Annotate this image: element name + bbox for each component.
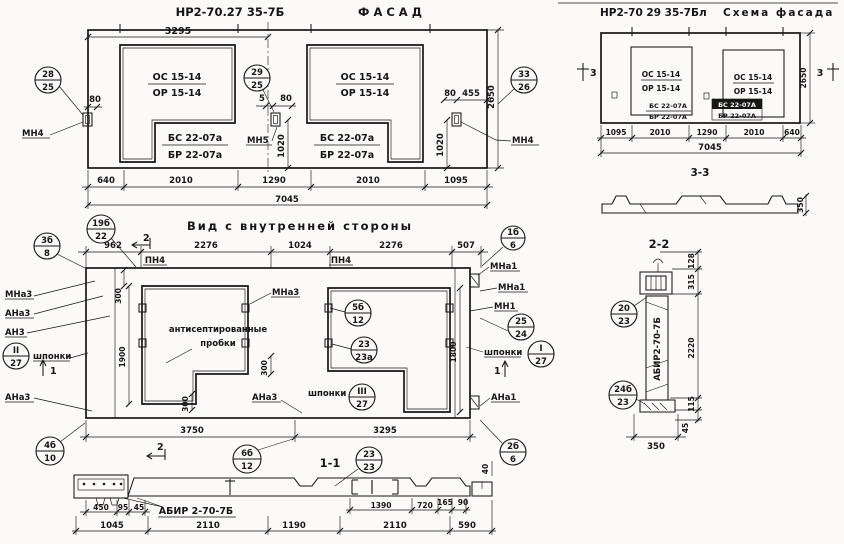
balloon-top: 29 <box>251 68 263 78</box>
balloon-top: 1б <box>507 227 519 238</box>
balloon-bot: 25 <box>251 81 263 91</box>
balloon-top: II <box>13 346 19 356</box>
interior-label-mna3: МНа3 <box>5 290 32 300</box>
balloon-bot: 6 <box>510 455 516 465</box>
facade-dim-7045: 7045 <box>275 195 299 205</box>
scheme-win1-mark-top: ОС 15-14 <box>642 70 680 79</box>
balloon-bot: 23 <box>617 398 629 408</box>
facade-anchor-mid-label: МН5 <box>247 136 269 146</box>
interior-label-shponki-mid: шпонки <box>308 389 346 399</box>
interior-dim-300c: 300 <box>181 396 190 412</box>
balloon-bot: 24 <box>515 330 527 340</box>
balloon-top: 24б <box>614 384 632 395</box>
facade-dim-2010b: 2010 <box>356 176 380 186</box>
facade-sill1-mark-bot: БР 22-07а <box>168 150 222 161</box>
balloon-bot: 10 <box>44 454 56 464</box>
balloon-top: 5б <box>352 302 364 313</box>
interior-dim-40: 40 <box>481 464 490 474</box>
section-1-1-title: 1-1 <box>320 456 341 470</box>
interior-note-line2: пробки <box>200 338 236 349</box>
interior-balloon-I-27: I 27 <box>528 341 554 367</box>
interior-label-an3: АН3 <box>5 328 25 338</box>
interior-label-ana3-a: АНа3 <box>5 309 30 319</box>
scheme-sill2-bot: БР 22-07А <box>718 112 756 120</box>
facade-dim-5: 5 <box>259 94 265 104</box>
balloon-top: 4б <box>44 440 56 451</box>
balloon-bot: 6 <box>510 241 516 251</box>
dim-115: 115 <box>687 396 696 412</box>
marker-label: 2 <box>157 442 164 453</box>
scheme-sill1-bot: БР 22-07А <box>649 113 687 121</box>
interior-dim-962: 962 <box>104 241 122 251</box>
balloon-top: 33 <box>518 70 530 80</box>
facade-title-code: НР2-70.27 35-7Б <box>176 5 285 19</box>
interior-dim-2276b: 2276 <box>379 241 403 251</box>
scheme-sill2-top: БС 22-07А <box>718 101 756 109</box>
interior-pn4-right: ПН4 <box>331 256 351 266</box>
interior-title: Вид с внутренней стороны <box>187 219 413 233</box>
dim-165: 165 <box>437 498 453 507</box>
scheme-win2-mark-top: ОС 15-14 <box>734 73 772 82</box>
facade-anchor-right-label: МН4 <box>512 136 534 146</box>
scheme-dim-640: 640 <box>784 128 800 137</box>
section22-label: АБИР2-70-7Б <box>653 317 663 381</box>
scheme-dim-2010b: 2010 <box>744 128 765 137</box>
dim-45: 45 <box>681 423 690 433</box>
interior-dim-1900: 1900 <box>118 347 127 368</box>
balloon-top: 28 <box>42 70 54 80</box>
scheme-sill1-top: БС 22-07А <box>649 102 687 110</box>
balloon-bot: 8 <box>44 249 50 259</box>
interior-label-mn1: МН1 <box>494 302 516 312</box>
scheme-win2-mark-bot: ОР 15-14 <box>734 87 772 96</box>
interior-dim-300b: 300 <box>260 360 269 376</box>
scheme-dim-2010a: 2010 <box>650 128 671 137</box>
balloon-bot: 23 <box>618 317 630 327</box>
facade-title-name: ФАСАД <box>358 5 426 19</box>
interior-dim-3295: 3295 <box>373 426 397 436</box>
facade-sill2-mark-top: БС 22-07а <box>320 133 374 144</box>
dim-2110b: 2110 <box>383 521 407 531</box>
balloon-top: 23 <box>363 450 375 460</box>
dim-720: 720 <box>417 501 433 510</box>
facade-sill1-mark-top: БС 22-07а <box>168 133 222 144</box>
dim-1190: 1190 <box>282 521 306 531</box>
interior-dim-1024: 1024 <box>288 241 312 251</box>
facade-dim-80-left: 80 <box>89 95 101 105</box>
interior-note-line1: антисептированные <box>169 325 268 335</box>
facade-dim-3295: 3295 <box>165 26 191 37</box>
balloon-bot: 23 <box>363 463 375 473</box>
marker-label: 1 <box>494 366 501 377</box>
interior-label-mna1-a: МНа1 <box>490 262 517 272</box>
balloon-top: 2б <box>507 441 519 452</box>
dim-95: 95 <box>118 503 128 512</box>
interior-dim-2276a: 2276 <box>194 241 218 251</box>
interior-dim-507: 507 <box>457 241 475 251</box>
scheme-title-name: Схема фасада <box>723 7 834 19</box>
paper-background <box>0 0 844 544</box>
facade-dim-2650: 2650 <box>487 85 497 109</box>
interior-label-shponki-right: шпонки <box>484 348 522 358</box>
balloon-top: 20 <box>618 304 630 314</box>
section22-title: 2-2 <box>649 237 670 251</box>
facade-dim-455: 455 <box>462 89 480 99</box>
facade-dim-80-mid: 80 <box>280 94 292 104</box>
balloon-bot: 25 <box>42 83 54 93</box>
dim-2220: 2220 <box>687 338 696 359</box>
balloon-bot: 12 <box>352 316 364 326</box>
facade-win2-mark-bot: ОР 15-14 <box>341 88 390 99</box>
interior-balloon-II-27: II 27 <box>3 343 29 369</box>
dim-128: 128 <box>687 253 696 269</box>
interior-label-ana3-mid: АНа3 <box>252 393 277 403</box>
dim-350: 350 <box>647 442 665 452</box>
dim-1390: 1390 <box>371 501 392 510</box>
dim-315: 315 <box>687 274 696 290</box>
facade-win1-mark-top: ОС 15-14 <box>153 72 202 83</box>
facade-dim-1095: 1095 <box>444 176 468 186</box>
dim-90: 90 <box>458 498 468 507</box>
marker-label: 3 <box>590 68 597 79</box>
facade-dim-2010a: 2010 <box>169 176 193 186</box>
dim-45: 45 <box>134 503 144 512</box>
interior-pn4-left: ПН4 <box>145 256 165 266</box>
facade-anchor-left-label: МН4 <box>22 129 44 139</box>
scheme-title-code: НР2-70 29 35-7Бл <box>600 7 707 19</box>
facade-win1-mark-bot: ОР 15-14 <box>153 88 202 99</box>
balloon-top: 3б <box>41 235 53 246</box>
interior-dim-1800: 1800 <box>449 342 458 363</box>
interior-label-shponki-left: шпонки <box>33 352 71 362</box>
balloon-bot: 23а <box>355 353 373 363</box>
interior-label-mna3-mid: МНа3 <box>272 288 299 298</box>
facade-dim-640: 640 <box>97 176 115 186</box>
facade-dim-1020-right: 1020 <box>436 133 446 157</box>
dim-450: 450 <box>93 503 109 512</box>
interior-label-ana3-b: АНа3 <box>5 393 30 403</box>
drawing-canvas: НР2-70.27 35-7Б ФАСАД 3295 ОС 15-14 ОР 1… <box>0 0 844 544</box>
balloon-top: 6б <box>241 448 253 459</box>
balloon-bot: 27 <box>535 357 547 367</box>
balloon-top: I <box>539 344 542 354</box>
scheme-dim-1290: 1290 <box>697 128 718 137</box>
balloon-bot: 27 <box>356 400 368 410</box>
balloon-bot: 26 <box>518 83 530 93</box>
marker-label: 3 <box>817 68 824 79</box>
dim-590: 590 <box>458 521 476 531</box>
balloon-bot: 12 <box>241 462 253 472</box>
scheme-dim-1095: 1095 <box>606 128 627 137</box>
interior-dim-3750: 3750 <box>180 426 204 436</box>
facade-dim-1290: 1290 <box>262 176 286 186</box>
interior-dim-300a: 300 <box>114 288 123 304</box>
balloon-bot: 27 <box>10 359 22 369</box>
interior-balloon-III-27: III 27 <box>349 384 375 410</box>
facade-win2-mark-top: ОС 15-14 <box>341 72 390 83</box>
balloon-top: III <box>357 387 367 397</box>
blueprint-sheet: НР2-70.27 35-7Б ФАСАД 3295 ОС 15-14 ОР 1… <box>0 0 844 544</box>
scheme-dim-2650: 2650 <box>799 68 808 89</box>
marker-label: 2 <box>143 233 150 244</box>
balloon-top: 25 <box>515 317 527 327</box>
dim-2110a: 2110 <box>196 521 220 531</box>
balloon-top: 19б <box>92 218 110 229</box>
interior-label-ana1: АНа1 <box>491 393 516 403</box>
facade-dim-1020-mid: 1020 <box>277 134 287 158</box>
scheme-dim-7045: 7045 <box>698 143 722 153</box>
scheme-win1-mark-bot: ОР 15-14 <box>642 84 680 93</box>
balloon-top: 23 <box>358 340 370 350</box>
facade-sill2-mark-bot: БР 22-07а <box>320 150 374 161</box>
marker-label: 1 <box>50 366 57 377</box>
section-3-3-title: 3-3 <box>691 167 710 179</box>
dim-1045: 1045 <box>100 521 124 531</box>
interior-label-mna1-b: МНа1 <box>498 283 525 293</box>
section-3-3-dim-350: 350 <box>796 197 805 213</box>
section11-label: АБИР 2-70-7Б <box>159 506 233 517</box>
